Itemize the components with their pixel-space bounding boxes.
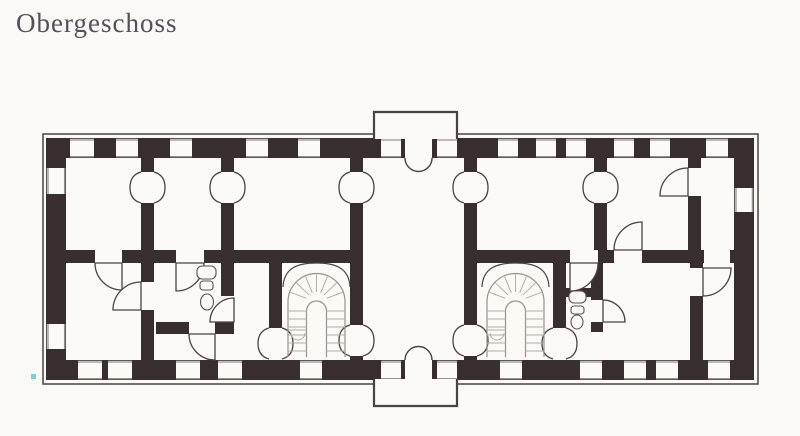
bath-fixtures-left [197,266,216,310]
balcony-door-bottom-leaves [405,347,432,361]
floor-plan [0,0,800,436]
door-swings [95,168,731,360]
interior-walls [66,158,734,360]
scanned-page: Obergeschoss [0,0,800,436]
scan-artifact [31,374,36,379]
balcony-door-top-leaves [405,158,432,172]
balcony-door-bottom-gap [405,360,432,382]
staircase-left [283,263,350,357]
staircase-right [482,263,549,357]
wc-fixtures-right [569,291,586,329]
window-right-wall [735,188,753,212]
balcony-door-top-gap [405,137,432,159]
